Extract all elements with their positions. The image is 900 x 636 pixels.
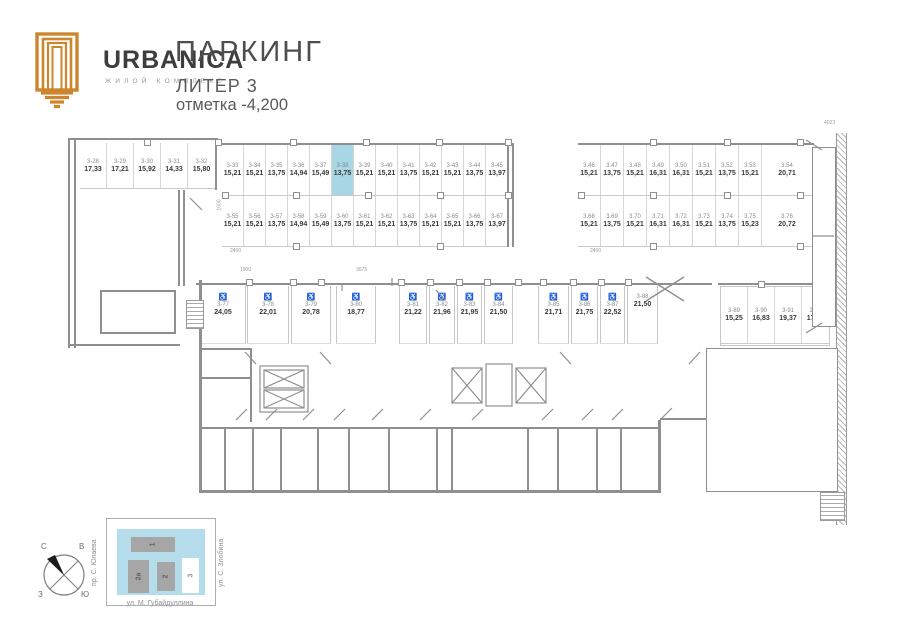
- dimension-label: 2400: [230, 248, 241, 254]
- minimap-building-3-current[interactable]: 3: [182, 558, 199, 593]
- compass: С В З Ю: [32, 540, 96, 606]
- dimension-label: 1600: [217, 199, 223, 210]
- dimension-label: 3675: [356, 267, 367, 273]
- minimap-building-1: 1: [131, 537, 175, 552]
- street-left-label: пр. С. Юлаева: [91, 528, 98, 598]
- minimap-building-2a: 2а: [128, 560, 149, 593]
- compass-south: Ю: [81, 590, 89, 599]
- dimension-label: 2400: [590, 248, 601, 254]
- street-bottom-label: ул. М. Губайдуллина: [100, 600, 220, 607]
- compass-west: З: [38, 590, 43, 599]
- compass-east: В: [79, 542, 84, 551]
- dimension-label: 1900: [240, 267, 251, 273]
- street-right-label: ул. С. Злобина: [218, 528, 225, 598]
- dimension-label: 4023: [824, 120, 835, 126]
- site-minimap: 1 2а 2 3: [106, 518, 216, 606]
- compass-north: С: [41, 542, 47, 551]
- minimap-building-2: 2: [157, 562, 175, 591]
